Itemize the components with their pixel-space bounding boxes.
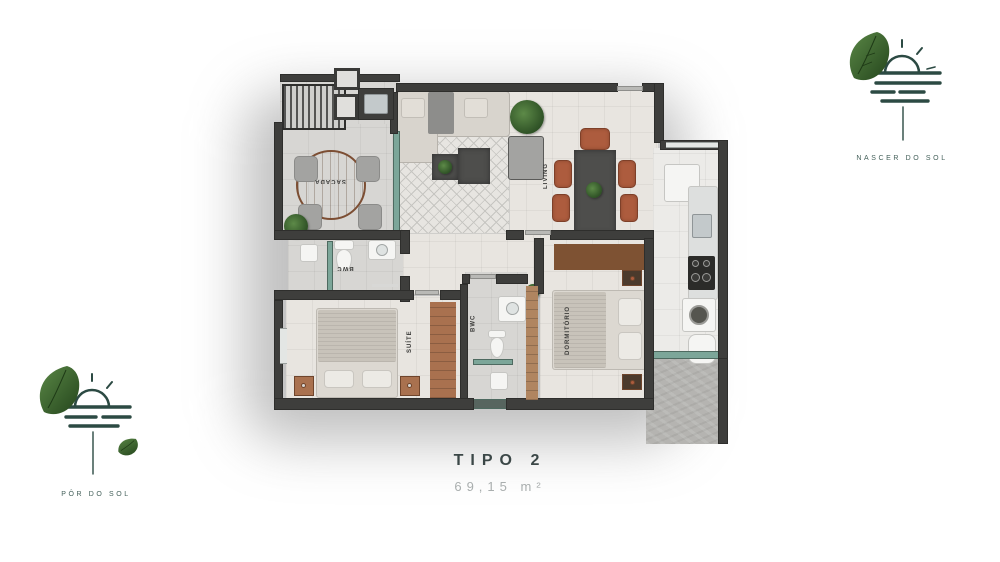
dining-chair [580, 128, 610, 150]
bwc-suite-label: BWC [332, 264, 358, 273]
wall [274, 398, 474, 410]
wall [460, 284, 468, 402]
wall [654, 83, 664, 143]
dormitorio-wardrobe [554, 244, 644, 270]
vanity-sink [376, 244, 388, 256]
plan-title: TIPO 2 [0, 452, 1000, 470]
logo-label: NASCER DO SOL [836, 155, 968, 162]
nightstand [400, 376, 420, 396]
wall [718, 140, 728, 364]
balcony-chair [358, 204, 382, 230]
wall [462, 274, 470, 284]
kitchen-window [666, 142, 718, 148]
pillow [618, 332, 642, 360]
grill-sink [364, 94, 388, 114]
bwc-social-label: BWC [468, 308, 479, 338]
nightstand [622, 374, 642, 390]
wall [396, 83, 618, 92]
nightstand [294, 376, 314, 396]
entry-door [618, 87, 642, 90]
page: NASCER DO SOL PÔR DO SOL [0, 0, 1000, 562]
wall [644, 238, 654, 400]
dining-chair [620, 194, 638, 222]
service-terrace-floor [646, 358, 728, 444]
plan-area: 69,15 m² [0, 479, 1000, 494]
wall [274, 122, 283, 240]
cooktop [688, 256, 715, 290]
shower-tray [490, 372, 508, 390]
pillow [324, 370, 354, 388]
towel-rail [372, 284, 398, 287]
wall [400, 230, 410, 254]
floor-plan: SACADA LIVING [268, 58, 736, 446]
kitchen-sink [692, 214, 712, 238]
sunrise-over-water-icon [836, 26, 968, 148]
logo-nascer-do-sol: NASCER DO SOL [836, 26, 968, 162]
plant [510, 100, 544, 134]
plan-caption: TIPO 2 69,15 m² [0, 452, 1000, 494]
shower-tray [300, 244, 318, 262]
dining-chair [554, 160, 572, 188]
pillow [618, 298, 642, 326]
window-suite [280, 328, 287, 364]
dining-chair [552, 194, 570, 222]
sofa-cushion [464, 98, 488, 118]
laundry-glass [648, 352, 722, 358]
side-table [458, 148, 490, 184]
vanity-sink [506, 302, 519, 315]
wall [550, 230, 654, 240]
shaft [334, 94, 358, 120]
wall [718, 358, 728, 444]
pillow [362, 370, 392, 388]
bwc-social-door [471, 275, 495, 278]
wall [496, 274, 528, 284]
washer-drum [689, 305, 709, 325]
shaft [334, 68, 360, 90]
suite-blanket [318, 310, 396, 362]
sliding-door [526, 286, 538, 400]
armchair [508, 136, 544, 180]
living-label: LIVING [540, 154, 552, 198]
dining-chair [618, 160, 636, 188]
laundry-tub [688, 334, 716, 364]
nightstand [622, 270, 642, 286]
dormitorio-door [526, 231, 550, 234]
plant [438, 160, 452, 174]
shower-glass-social [474, 360, 512, 364]
sacada-label: SACADA [310, 176, 350, 186]
sofa-cushion [401, 98, 425, 118]
plant [586, 182, 602, 198]
sacada-glass-door [394, 132, 399, 232]
wall [274, 230, 408, 240]
wall [506, 230, 524, 240]
sofa-throw [428, 92, 454, 134]
window-bwc-social [474, 400, 506, 408]
suite-label: SUÍTE [404, 322, 416, 362]
wall [274, 290, 414, 300]
suite-door [416, 291, 438, 294]
dormitorio-label: DORMITÓRIO [562, 298, 574, 364]
balcony-chair [356, 156, 380, 182]
suite-wardrobe [430, 302, 456, 398]
